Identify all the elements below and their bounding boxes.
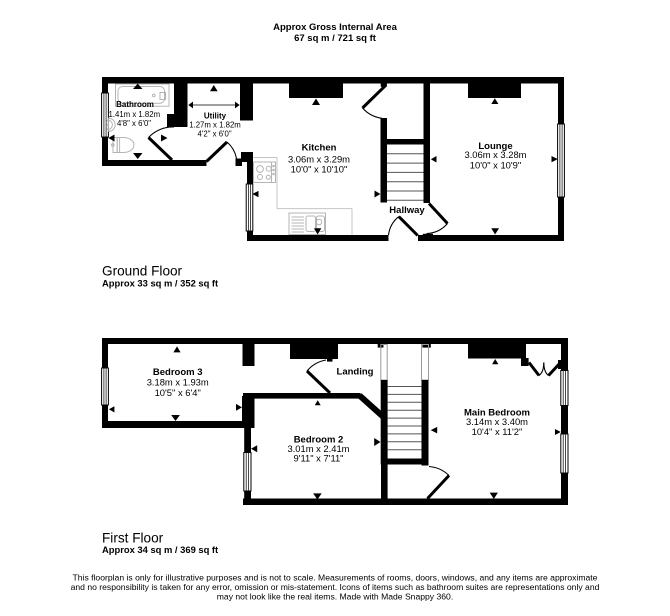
svg-text:Hallway: Hallway xyxy=(389,205,425,216)
svg-text:This floorplan is only for ill: This floorplan is only for illustrative … xyxy=(73,572,598,582)
svg-text:Utility: Utility xyxy=(204,111,227,120)
svg-text:Bathroom: Bathroom xyxy=(116,100,154,109)
svg-text:Approx 33 sq m / 352 sq ft: Approx 33 sq m / 352 sq ft xyxy=(102,278,218,289)
svg-text:Kitchen: Kitchen xyxy=(302,142,337,153)
svg-text:1.41m x 1.82m: 1.41m x 1.82m xyxy=(109,110,161,119)
svg-text:4'8" x 6'0": 4'8" x 6'0" xyxy=(117,119,151,128)
svg-text:Approx Gross Internal Area: Approx Gross Internal Area xyxy=(273,22,397,33)
svg-text:and no responsibility is taken: and no responsibility is taken for any e… xyxy=(71,582,600,592)
svg-text:Landing: Landing xyxy=(337,367,374,378)
svg-text:9'11" x 7'11": 9'11" x 7'11" xyxy=(293,452,343,463)
svg-text:Ground Floor: Ground Floor xyxy=(102,264,183,279)
svg-text:67 sq m / 721 sq ft: 67 sq m / 721 sq ft xyxy=(294,33,377,44)
svg-text:10'0" x 10'10": 10'0" x 10'10" xyxy=(291,164,348,175)
svg-text:1.27m x 1.82m: 1.27m x 1.82m xyxy=(189,121,241,130)
svg-text:3.06m x 3.28m: 3.06m x 3.28m xyxy=(464,149,526,160)
svg-text:3.18m x 1.93m: 3.18m x 1.93m xyxy=(147,377,209,388)
svg-text:3.06m x 3.29m: 3.06m x 3.29m xyxy=(288,153,350,164)
svg-text:10'5" x 6'4": 10'5" x 6'4" xyxy=(155,387,201,398)
svg-text:4'2" x 6'0": 4'2" x 6'0" xyxy=(198,129,232,138)
svg-text:10'0" x 10'9": 10'0" x 10'9" xyxy=(470,160,521,171)
svg-text:Approx 34 sq m / 369 sq ft: Approx 34 sq m / 369 sq ft xyxy=(102,544,218,555)
svg-text:10'4" x 11'2": 10'4" x 11'2" xyxy=(472,426,523,437)
svg-text:may not look like the real ite: may not look like the real items. Made w… xyxy=(217,591,453,601)
